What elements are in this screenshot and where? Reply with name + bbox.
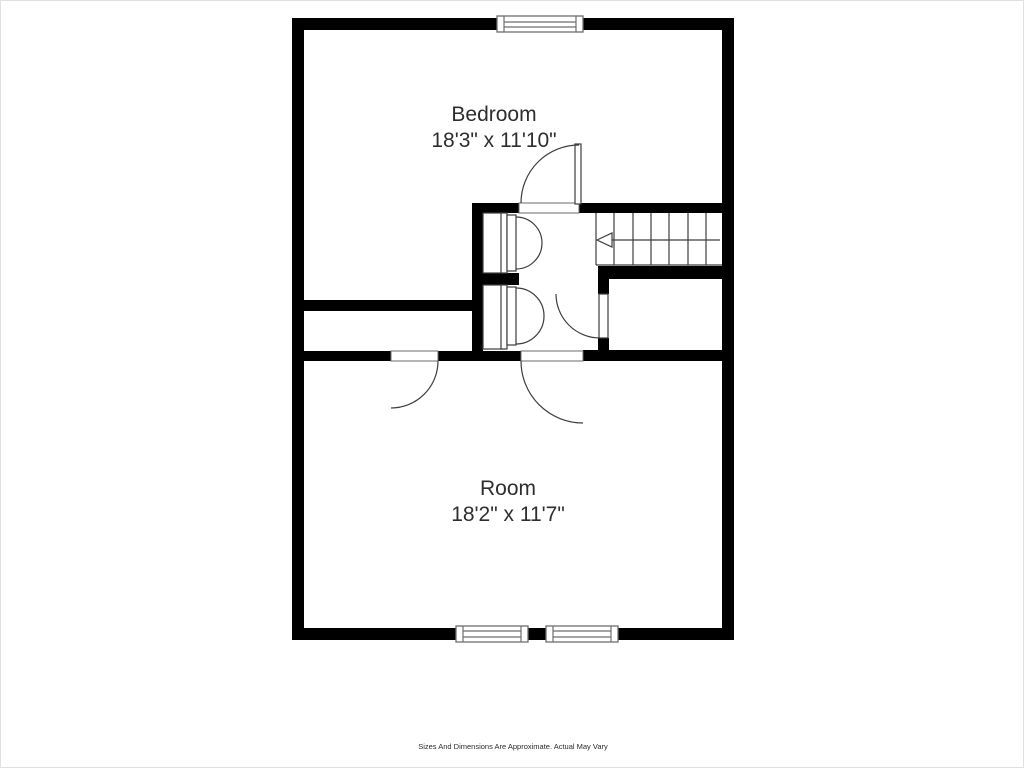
bedroom-dimensions: 18'3" x 11'10" xyxy=(431,129,556,152)
room-closet-opening xyxy=(391,351,438,361)
lower-closet-swing-bottom xyxy=(516,316,544,344)
wall-closet-divider xyxy=(472,273,519,285)
window-bottom-right xyxy=(546,626,618,642)
room-label: Room xyxy=(480,477,536,500)
room-closet-door xyxy=(391,351,438,408)
bedroom-door-leaf xyxy=(575,144,581,204)
bedroom-door-opening xyxy=(519,203,579,213)
lower-closet-swing-top xyxy=(516,288,544,316)
window-bottom-left xyxy=(456,626,528,642)
upper-closet-interior xyxy=(483,213,503,273)
lower-closet-track xyxy=(501,285,507,349)
wall-band-mid xyxy=(438,351,521,361)
floorplan-drawing: Bedroom 18'3" x 11'10" Room 18'2" x 11'7… xyxy=(1,1,1024,768)
upper-closet xyxy=(483,213,542,273)
upper-closet-door-leaf xyxy=(507,215,516,271)
wall-left xyxy=(292,18,304,640)
wall-landing-left-lower xyxy=(598,338,609,358)
upper-closet-track xyxy=(501,213,507,273)
upper-closet-swing-top xyxy=(516,217,542,243)
landing-door-swing xyxy=(556,294,600,338)
window-top xyxy=(497,16,583,32)
room-entry-swing xyxy=(521,361,583,423)
room-dimensions: 18'2" x 11'7" xyxy=(451,503,565,526)
bedroom-door xyxy=(519,144,581,213)
room-closet-swing xyxy=(391,361,438,408)
lower-closet-interior xyxy=(483,285,503,349)
wall-under-stairs xyxy=(598,266,722,279)
room-entry-opening xyxy=(521,351,583,361)
bedroom-door-swing xyxy=(521,145,579,203)
arrow-head xyxy=(597,233,612,247)
stairs-direction-arrow xyxy=(597,233,720,247)
disclaimer-text: Sizes And Dimensions Are Approximate. Ac… xyxy=(418,742,608,751)
wall-bedroom-bottom xyxy=(304,300,483,311)
room-entry-door xyxy=(521,351,583,423)
wall-hall-top-right xyxy=(579,203,722,213)
bedroom-label: Bedroom xyxy=(451,103,536,126)
staircase xyxy=(596,213,722,265)
wall-right xyxy=(722,18,734,640)
landing-door-leaf xyxy=(599,294,608,338)
landing-room-door xyxy=(556,294,608,338)
stair-treads xyxy=(614,213,706,265)
lower-closet-door-leaf xyxy=(507,287,516,345)
floorplan-page: Bedroom 18'3" x 11'10" Room 18'2" x 11'7… xyxy=(0,0,1024,768)
lower-closet xyxy=(483,285,544,349)
wall-hall-top-left xyxy=(472,203,519,213)
wall-band-left xyxy=(292,351,391,361)
upper-closet-swing-bottom xyxy=(516,243,542,269)
wall-landing-left-upper xyxy=(598,266,609,294)
